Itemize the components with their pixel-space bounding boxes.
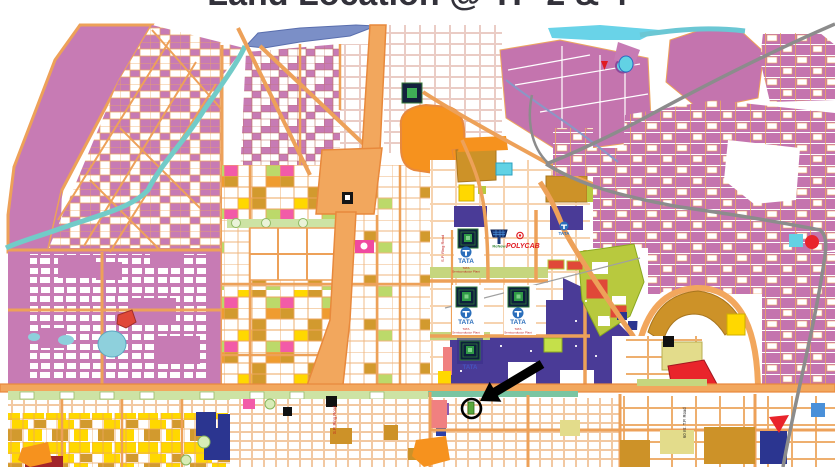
svg-text:60 mt. T.P. Road: 60 mt. T.P. Road (682, 407, 687, 438)
svg-text:ReNew: ReNew (492, 244, 506, 249)
svg-text:TATA: TATA (458, 319, 474, 326)
svg-text:S.P. Ring Road: S.P. Ring Road (440, 235, 445, 262)
svg-text:TATA: TATA (458, 258, 474, 265)
svg-text:TATA: TATA (559, 231, 571, 236)
svg-text:Semiconductor Plant: Semiconductor Plant (504, 331, 532, 335)
svg-text:POLYCAB: POLYCAB (506, 243, 540, 250)
svg-text:TATA: TATA (463, 365, 478, 371)
svg-text:TATA: TATA (510, 319, 526, 326)
svg-text:Semiconductor Plant: Semiconductor Plant (452, 270, 480, 274)
svg-text:Semiconductor Plant: Semiconductor Plant (452, 331, 480, 335)
svg-text:S.P. Ring Road: S.P. Ring Road (332, 405, 337, 434)
